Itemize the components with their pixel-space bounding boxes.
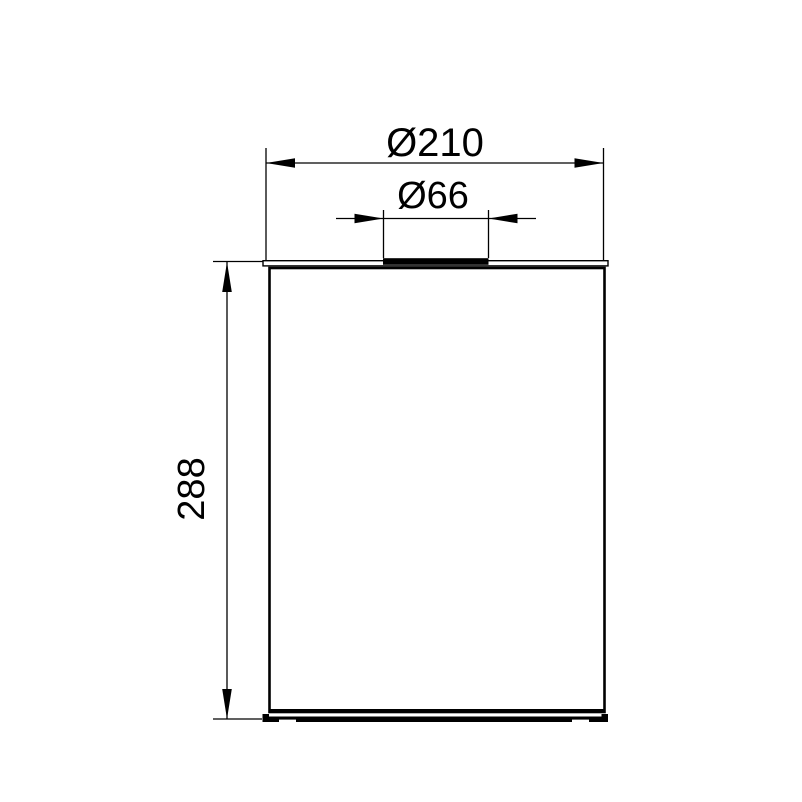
base-notch-right — [572, 720, 589, 723]
technical-drawing: Ø210 Ø66 288 — [0, 0, 802, 802]
opening-bar — [383, 258, 489, 265]
arrowhead-down-icon — [222, 689, 232, 719]
base-notch-left — [279, 720, 296, 723]
base-strip — [263, 717, 609, 723]
base-foot-right — [602, 714, 609, 722]
arrowhead-right-icon — [575, 158, 604, 168]
arrowhead-inward-right-icon — [489, 214, 518, 224]
arrowhead-left-icon — [266, 158, 295, 168]
dim-height: 288 — [171, 262, 263, 720]
drawing-canvas: Ø210 Ø66 288 — [0, 0, 802, 802]
object-views — [263, 258, 609, 722]
dim-outer-diameter-label: Ø210 — [386, 121, 484, 165]
arrowhead-up-icon — [222, 262, 232, 292]
dim-opening-diameter: Ø66 — [336, 175, 536, 258]
dim-opening-diameter-label: Ø66 — [397, 175, 469, 217]
body-outline — [270, 268, 605, 712]
base-foot-left — [263, 714, 270, 722]
dim-height-label: 288 — [171, 457, 213, 520]
arrowhead-inward-left-icon — [355, 214, 384, 224]
